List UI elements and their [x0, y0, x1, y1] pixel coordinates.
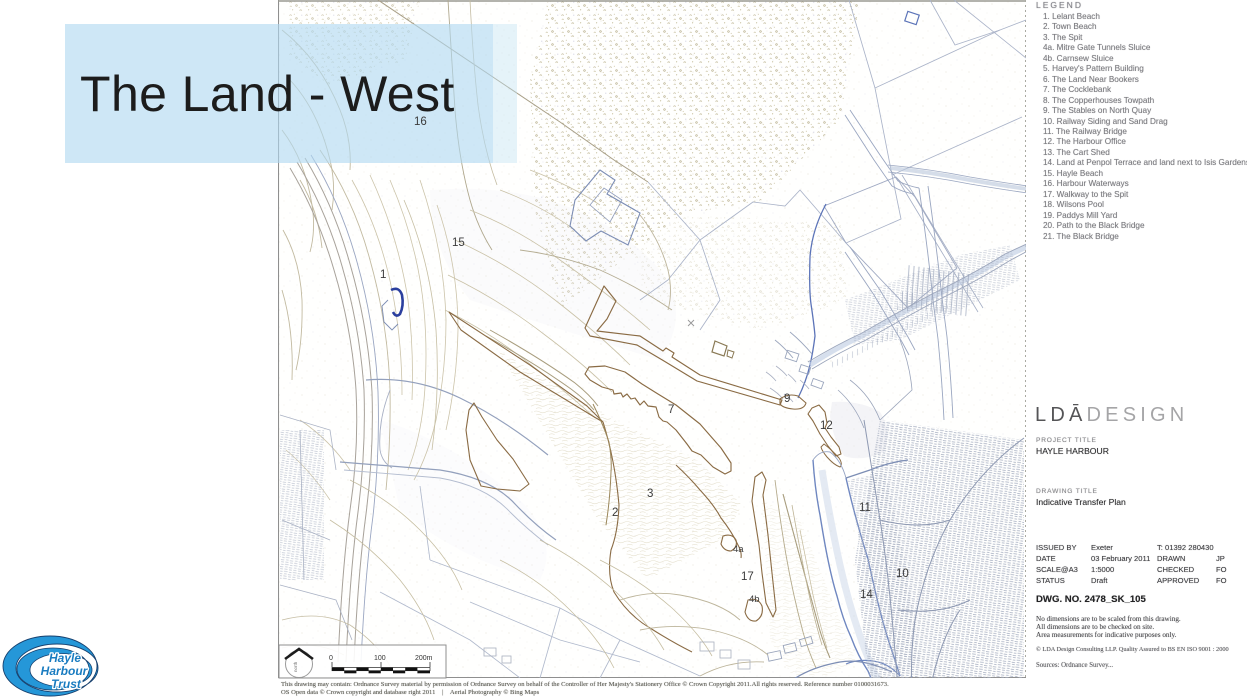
- svg-text:north: north: [293, 661, 298, 672]
- svg-text:11: 11: [859, 502, 871, 514]
- svg-text:3: 3: [647, 488, 653, 500]
- svg-text:15: 15: [452, 237, 465, 249]
- svg-text:Trust: Trust: [51, 677, 82, 691]
- svg-text:200m: 200m: [415, 655, 433, 662]
- svg-text:0: 0: [329, 655, 333, 662]
- svg-text:Harbour: Harbour: [41, 664, 89, 678]
- svg-text:14: 14: [860, 589, 873, 601]
- svg-text:7: 7: [668, 404, 674, 416]
- svg-text:4b: 4b: [749, 594, 760, 605]
- svg-text:4a: 4a: [733, 544, 744, 555]
- svg-text:100: 100: [374, 655, 386, 662]
- svg-text:2: 2: [612, 507, 618, 519]
- svg-text:9: 9: [784, 393, 790, 405]
- svg-text:12: 12: [820, 420, 833, 432]
- svg-text:17: 17: [741, 571, 754, 583]
- svg-text:1: 1: [380, 269, 386, 281]
- svg-text:Hayle: Hayle: [49, 651, 81, 665]
- svg-text:10: 10: [896, 568, 909, 580]
